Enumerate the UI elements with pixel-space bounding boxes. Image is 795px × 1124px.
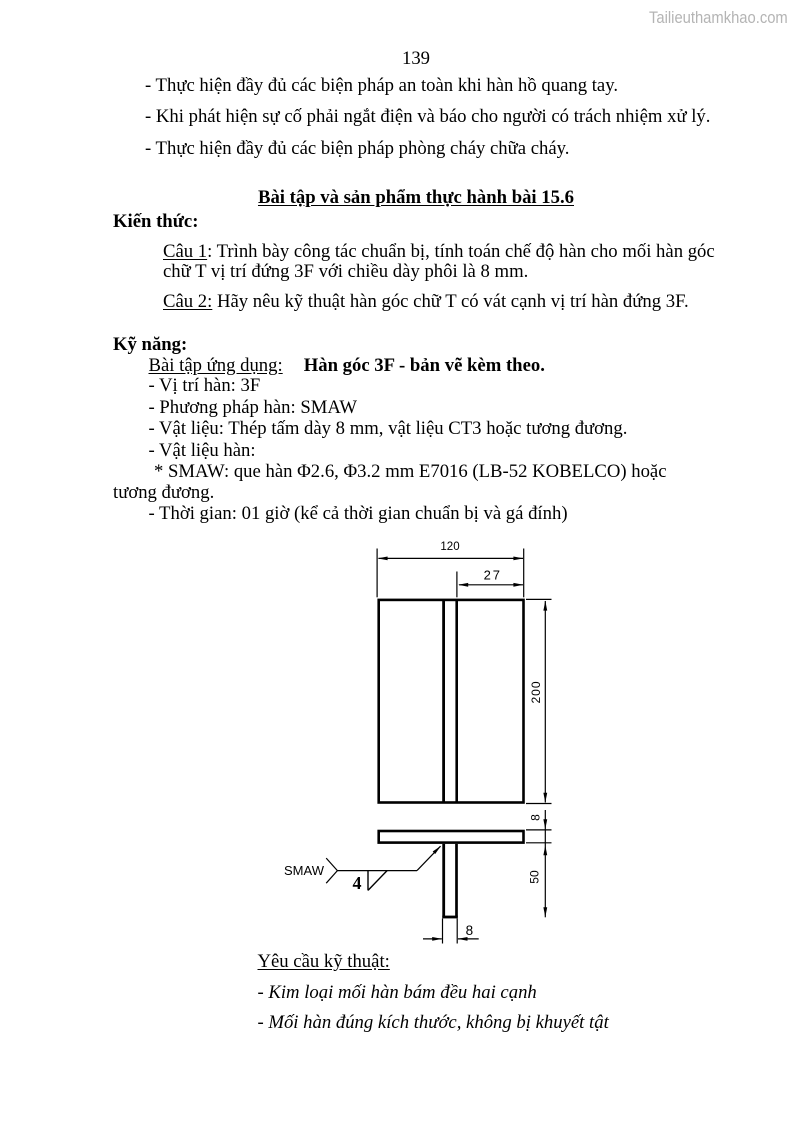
svg-text:8: 8 <box>466 923 474 938</box>
svg-text:SMAW: SMAW <box>284 863 325 878</box>
svg-text:50: 50 <box>528 870 542 884</box>
svg-text:27: 27 <box>484 568 502 583</box>
svg-text:4: 4 <box>353 873 362 893</box>
svg-text:8: 8 <box>528 814 542 821</box>
svg-text:200: 200 <box>529 680 543 703</box>
svg-text:120: 120 <box>440 541 459 553</box>
